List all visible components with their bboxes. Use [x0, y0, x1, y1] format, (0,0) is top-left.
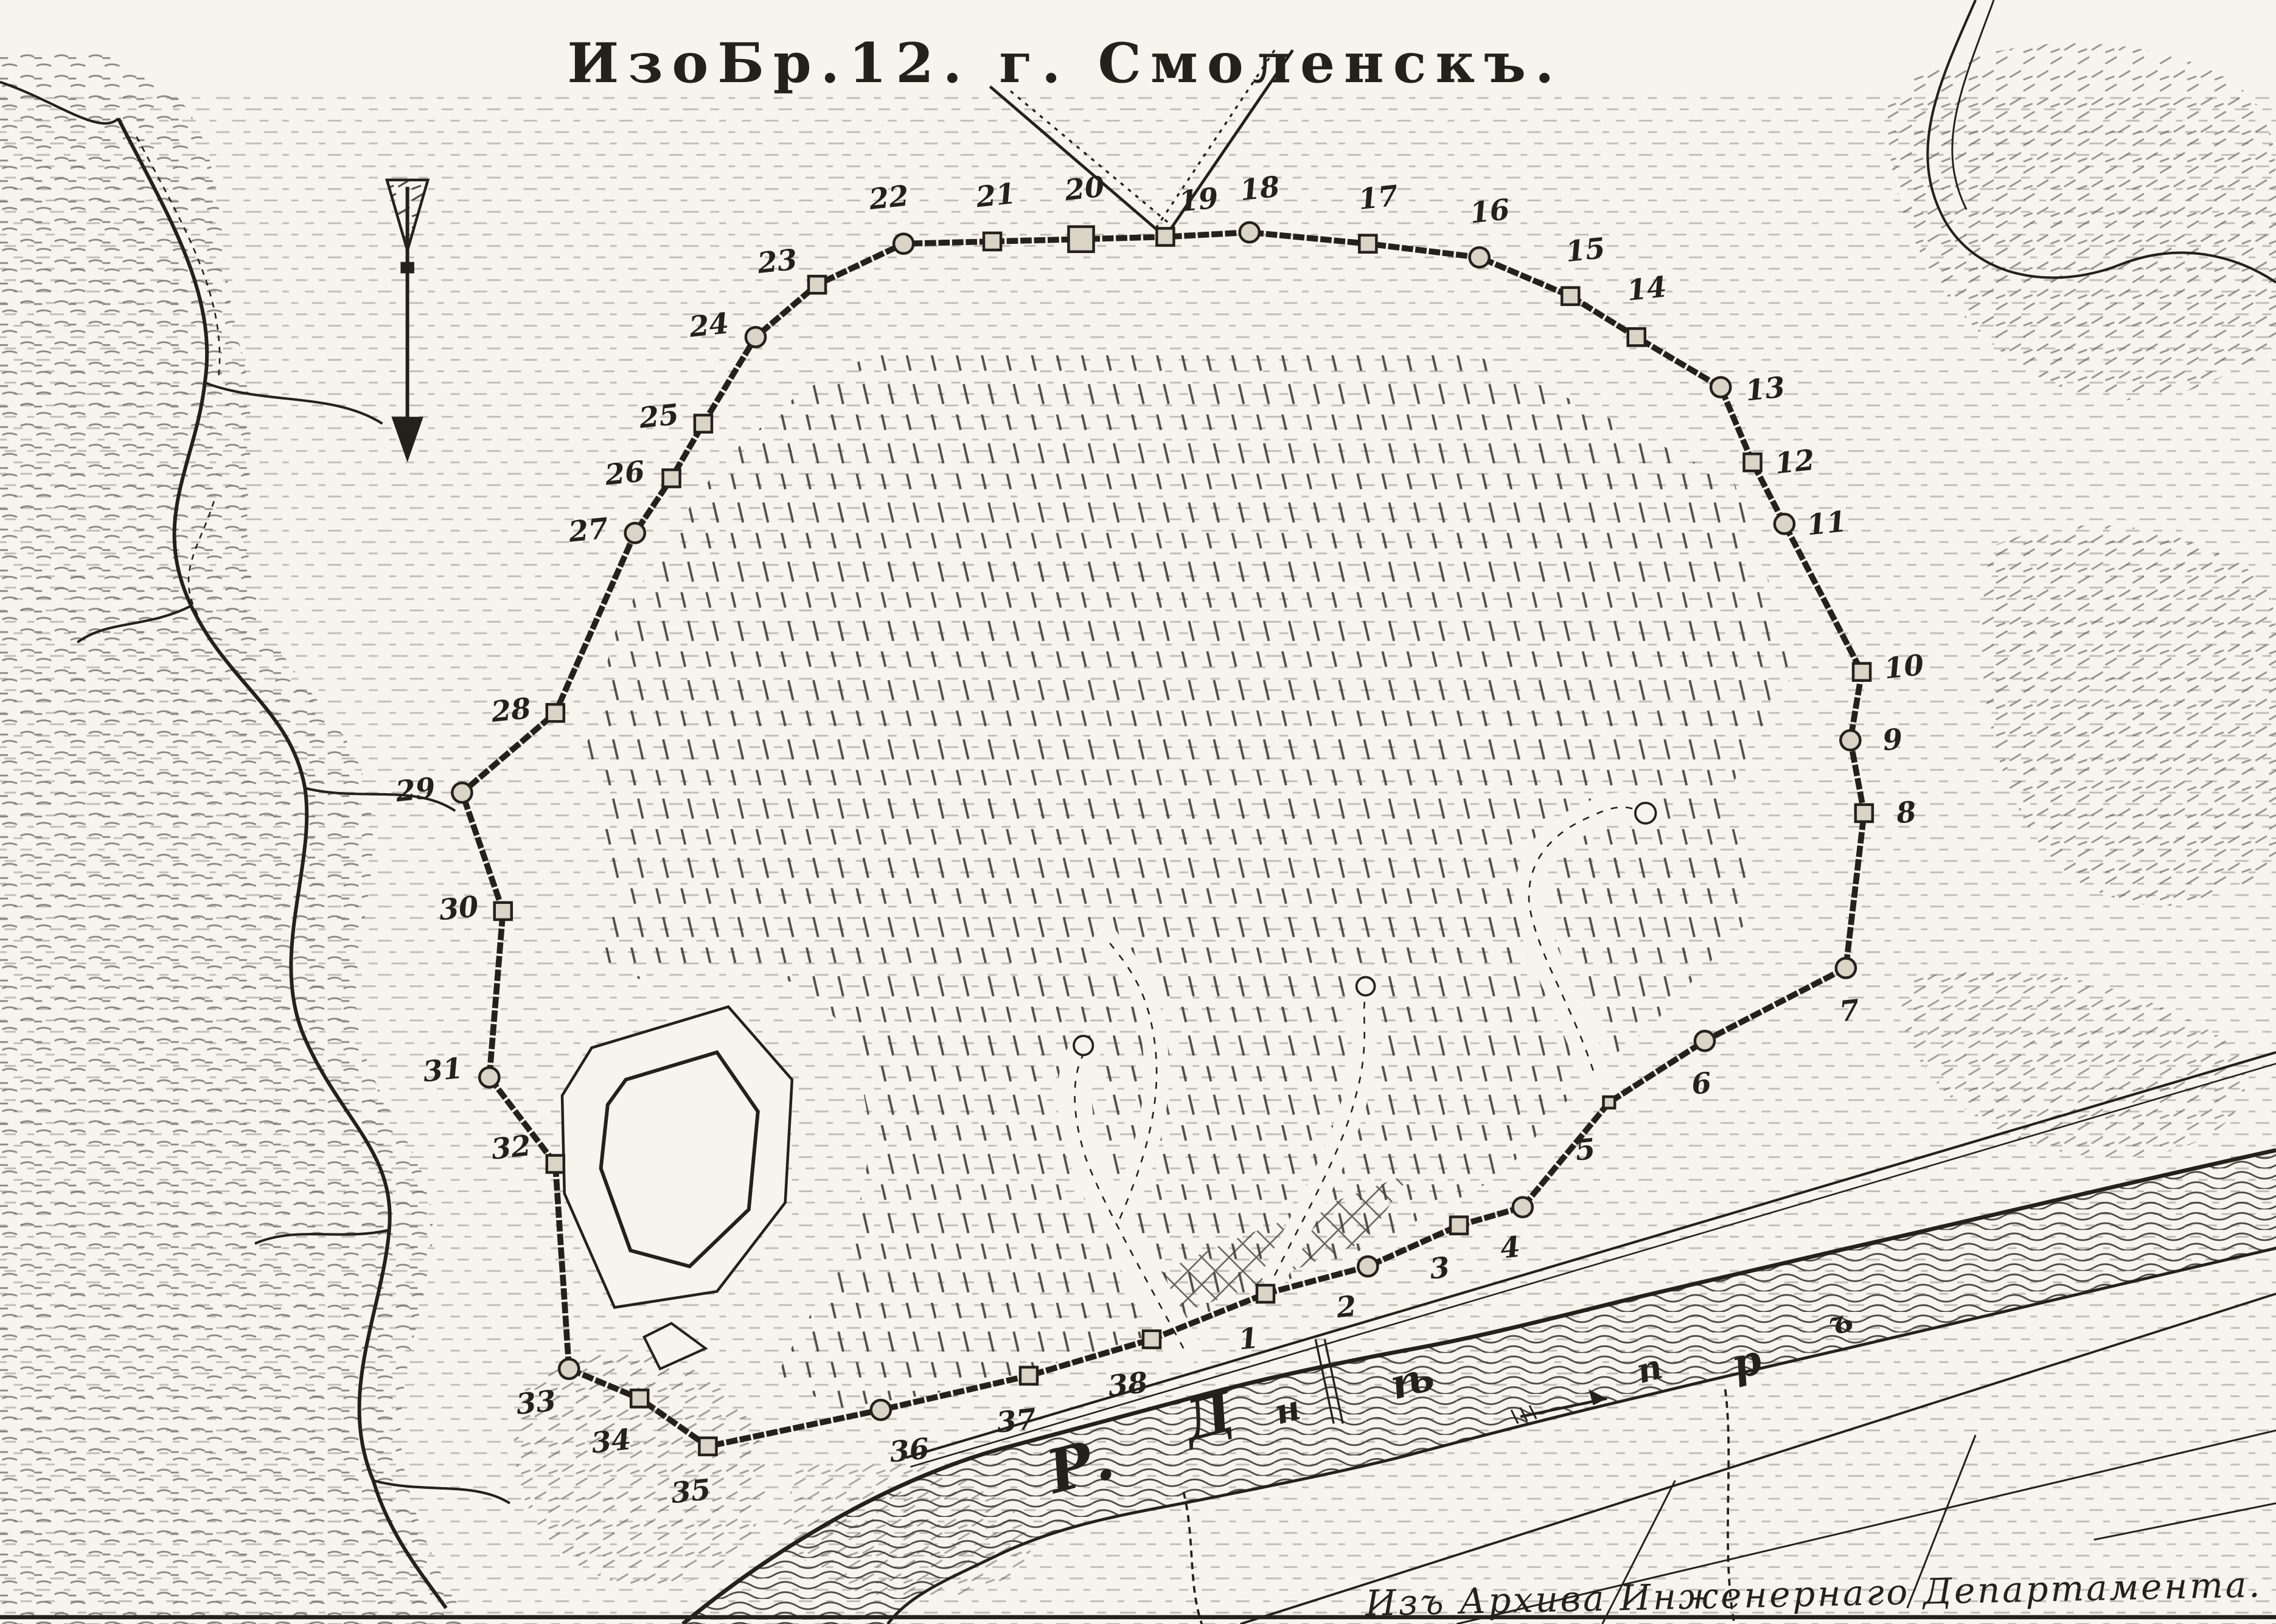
tower-3-square-mark [1450, 1217, 1467, 1234]
tower-6-round-mark [1695, 1031, 1714, 1050]
tower-10-square-mark [1853, 664, 1870, 681]
tower-number-15: 15 [1564, 232, 1607, 269]
tower-number-12: 12 [1773, 443, 1816, 481]
tower-number-7: 7 [1838, 993, 1861, 1029]
tower-number-2: 2 [1334, 1289, 1358, 1325]
map-sheet: 1234567891011121314151617181920212223242… [0, 0, 2276, 1624]
tower-24-round-mark [746, 327, 765, 347]
tower-14-square-mark [1628, 328, 1645, 345]
tower-number-19: 19 [1177, 181, 1220, 219]
tower-number-3: 3 [1428, 1251, 1451, 1286]
tower-number-27: 27 [566, 512, 610, 549]
tower-13-round-mark [1711, 378, 1730, 397]
tower-30-square-mark [495, 903, 512, 920]
tower-number-37: 37 [995, 1403, 1037, 1440]
tower-number-35: 35 [669, 1473, 712, 1511]
tower-number-22: 22 [867, 179, 910, 217]
tower-number-13: 13 [1744, 370, 1786, 408]
tower-25-square-mark [695, 415, 712, 432]
tower-number-1: 1 [1237, 1321, 1260, 1356]
tower-number-26: 26 [603, 455, 646, 493]
tower-20-square-mark [1068, 227, 1093, 252]
tower-34-square-mark [631, 1390, 648, 1407]
tower-2-round-mark [1358, 1257, 1377, 1276]
tower-33-round-mark [559, 1359, 579, 1378]
tower-19-square-mark [1157, 228, 1174, 245]
tower-number-38: 38 [1107, 1366, 1149, 1404]
tower-number-11: 11 [1805, 505, 1848, 543]
tower-31-round-mark [479, 1067, 499, 1087]
tower-5-square-mark [1604, 1097, 1615, 1108]
tower-number-25: 25 [637, 398, 680, 435]
tower-number-34: 34 [590, 1423, 632, 1460]
tower-22-round-mark [894, 234, 913, 254]
tower-number-28: 28 [489, 692, 532, 729]
tower-number-21: 21 [974, 177, 1017, 215]
tower-35-square-mark [699, 1438, 716, 1455]
tower-26-square-mark [663, 470, 680, 487]
smolensk-map: 1234567891011121314151617181920212223242… [0, 0, 2276, 1624]
tower-number-14: 14 [1626, 270, 1668, 308]
tower-number-17: 17 [1357, 179, 1399, 217]
tower-number-10: 10 [1882, 648, 1926, 686]
tower-number-8: 8 [1894, 795, 1918, 830]
tower-38-square-mark [1143, 1331, 1160, 1348]
tower-15-square-mark [1562, 288, 1579, 305]
tower-36-round-mark [871, 1400, 891, 1420]
tower-21-square-mark [984, 233, 1001, 250]
tower-number-32: 32 [490, 1129, 532, 1167]
tower-28-square-mark [547, 704, 564, 721]
tower-17-square-mark [1359, 235, 1376, 252]
tower-12-square-mark [1744, 454, 1761, 471]
tower-37-square-mark [1020, 1367, 1037, 1384]
tower-number-33: 33 [515, 1384, 557, 1422]
tower-number-20: 20 [1063, 170, 1107, 208]
tower-number-4: 4 [1498, 1230, 1522, 1266]
tower-number-16: 16 [1469, 193, 1511, 231]
tower-27-round-mark [625, 523, 645, 543]
tower-number-36: 36 [888, 1432, 931, 1470]
tower-7-round-mark [1836, 958, 1856, 977]
map-title: ИзоБр.12. г. Смоленскъ. [567, 32, 1563, 95]
tower-8-square-mark [1856, 805, 1873, 822]
tower-9-round-mark [1840, 730, 1860, 750]
tower-number-18: 18 [1239, 170, 1281, 208]
tower-29-round-mark [452, 783, 472, 802]
tower-number-31: 31 [422, 1052, 464, 1089]
tower-number-23: 23 [756, 243, 799, 280]
tower-11-round-mark [1775, 514, 1794, 533]
tower-number-5: 5 [1574, 1133, 1597, 1168]
tower-4-round-mark [1513, 1198, 1533, 1217]
tower-16-round-mark [1470, 248, 1489, 267]
tower-number-29: 29 [394, 771, 437, 809]
tower-number-30: 30 [437, 890, 481, 928]
tower-number-24: 24 [687, 307, 730, 344]
tower-number-9: 9 [1881, 723, 1904, 758]
tower-1-square-mark [1257, 1285, 1274, 1302]
tower-number-6: 6 [1690, 1066, 1713, 1102]
tower-18-round-mark [1240, 223, 1259, 242]
tower-23-square-mark [809, 276, 826, 293]
tower-32-square-mark [547, 1156, 564, 1173]
